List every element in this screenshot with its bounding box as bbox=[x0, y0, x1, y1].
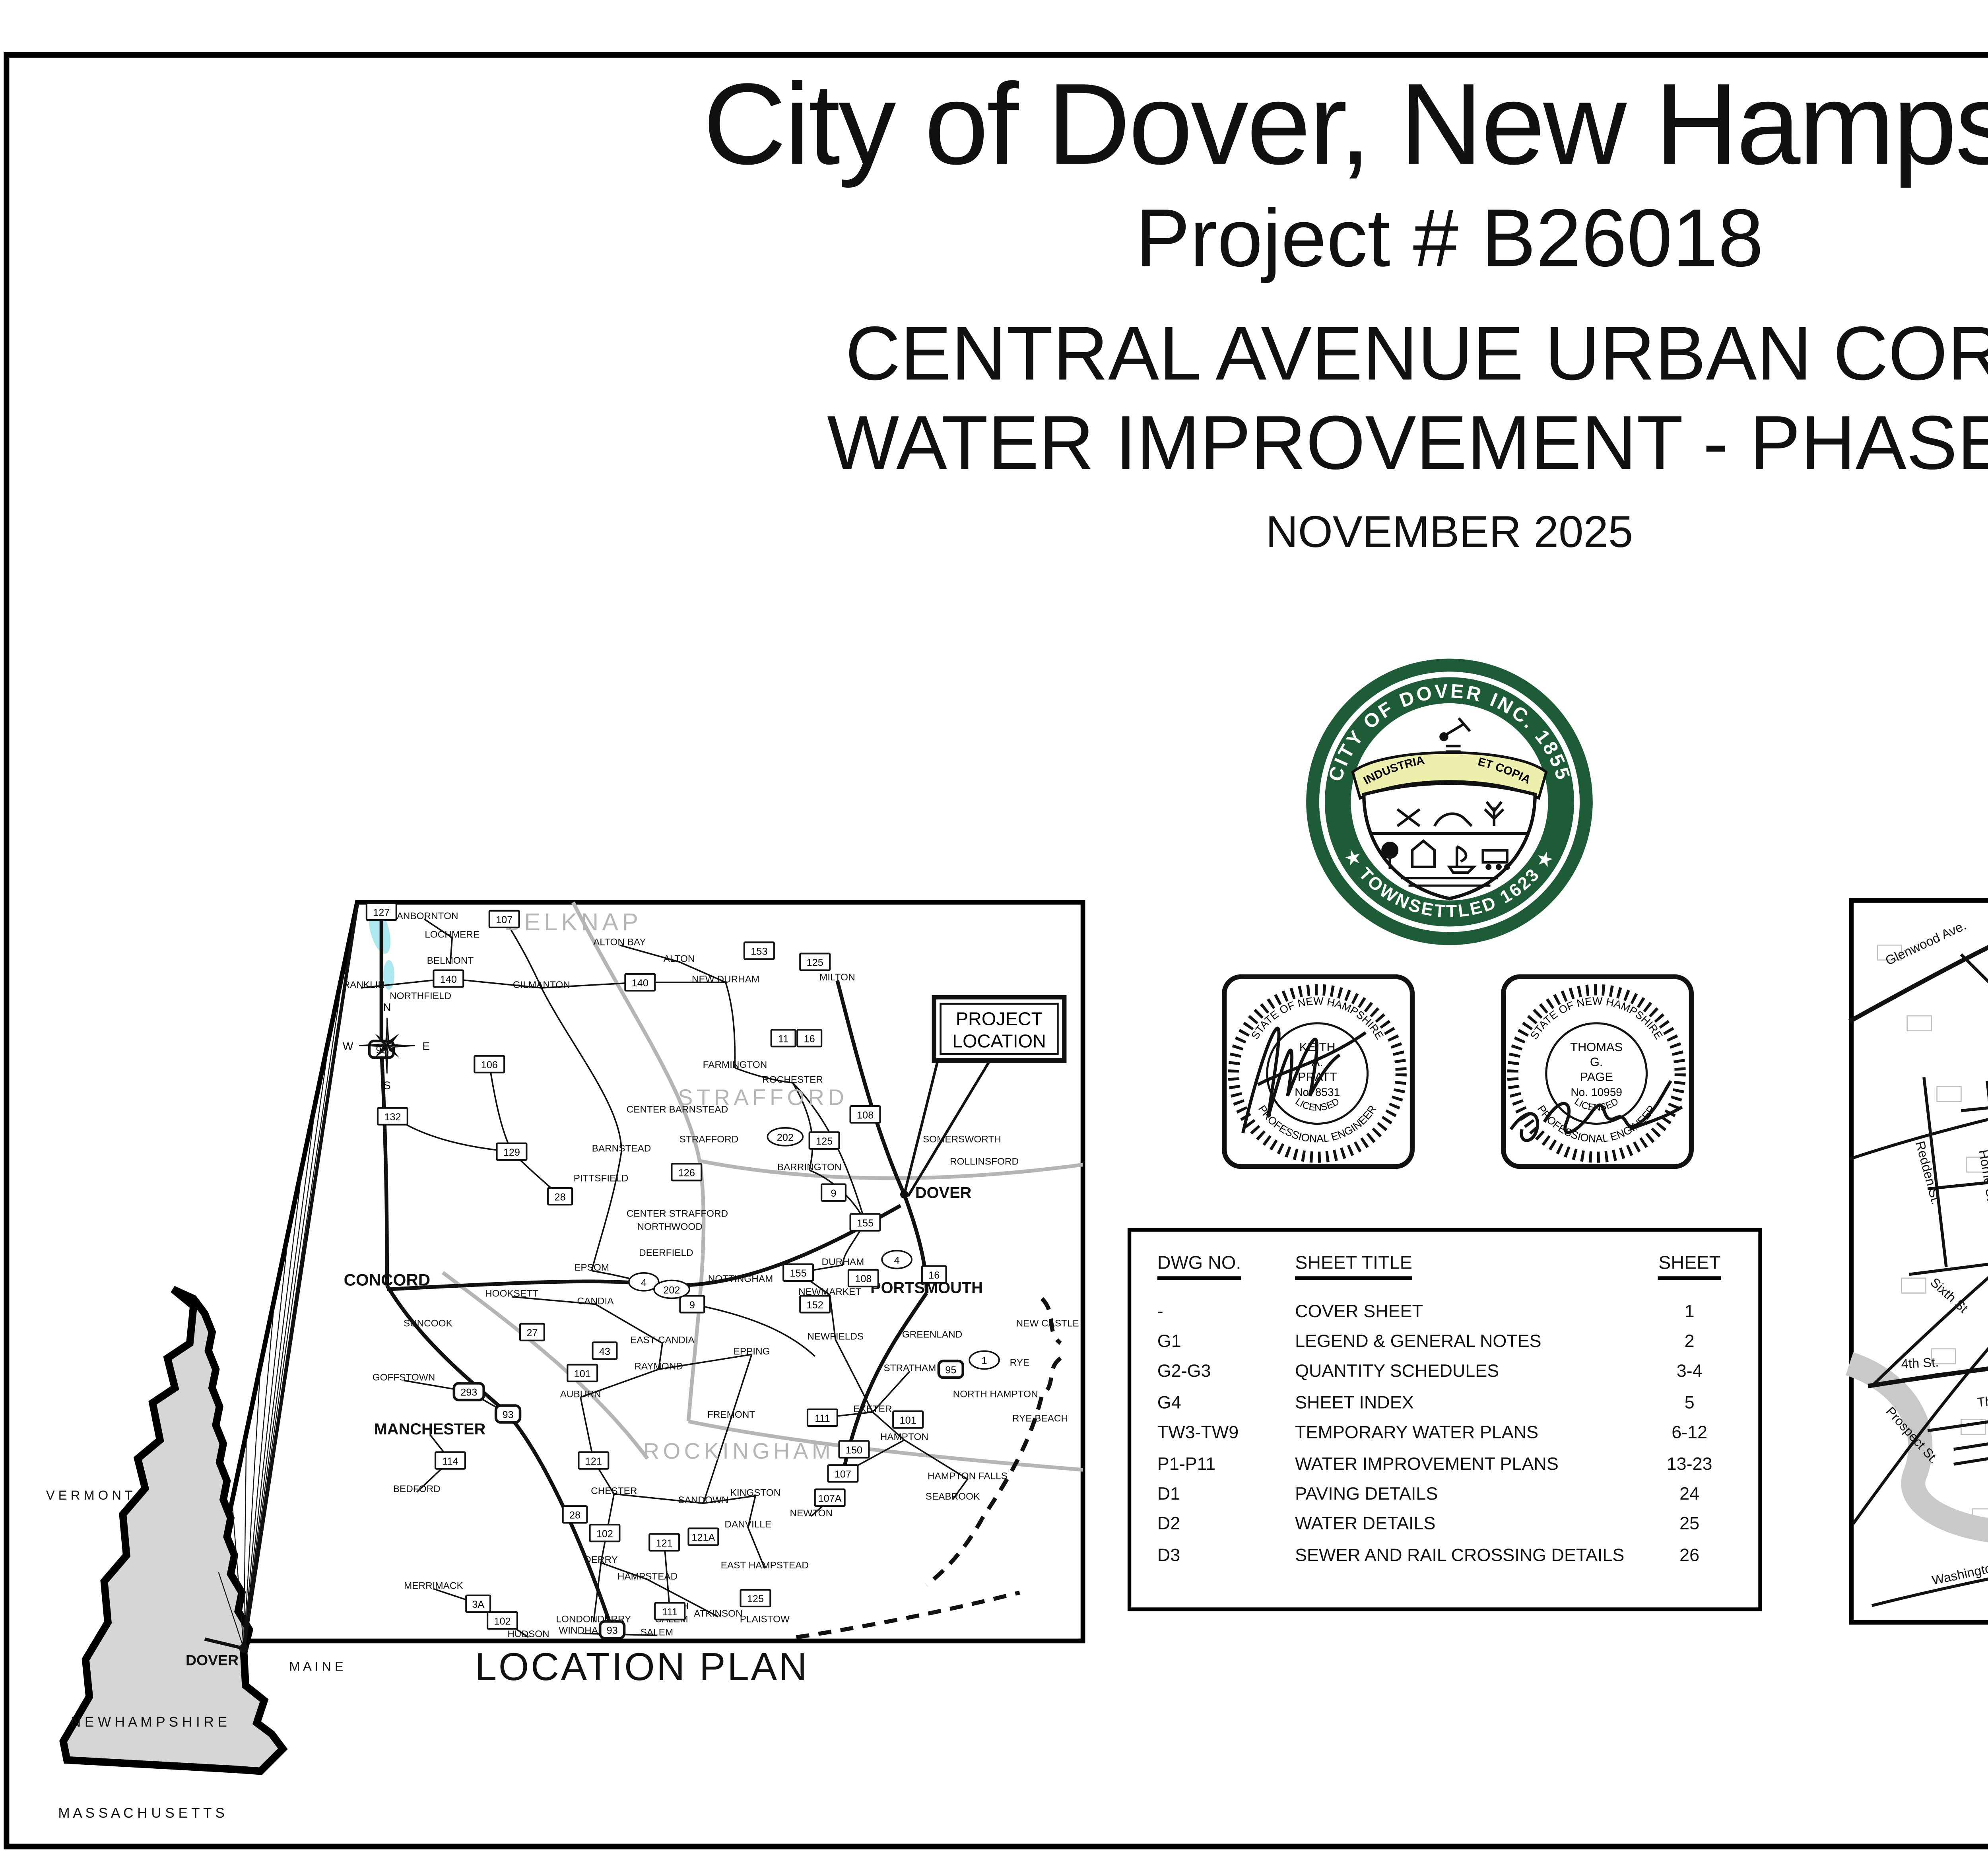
fan-line bbox=[205, 1639, 244, 1648]
fan-line bbox=[244, 904, 357, 1648]
fan-line bbox=[244, 1238, 288, 1649]
vicinity-map: T Garrison Hill Tank PROJECT LOCATION Gl… bbox=[1850, 898, 1988, 1624]
fan-line bbox=[244, 1104, 316, 1648]
screenshot-stage: City of Dover, New Hampshire Project # B… bbox=[0, 0, 1988, 1859]
fan-line bbox=[233, 1506, 244, 1648]
fan-line bbox=[244, 1372, 260, 1649]
magnifier-fan-lines bbox=[0, 0, 1988, 1859]
fan-line bbox=[244, 1038, 330, 1648]
vicinity-map-caption: VICINITY MAP bbox=[1916, 1647, 1988, 1691]
fan-line bbox=[244, 1172, 302, 1649]
fan-line bbox=[244, 971, 344, 1648]
map-label: 4th St. bbox=[1901, 1354, 1939, 1371]
drawing-sheet: City of Dover, New Hampshire Project # B… bbox=[0, 0, 1988, 1859]
fan-line bbox=[219, 1572, 244, 1648]
